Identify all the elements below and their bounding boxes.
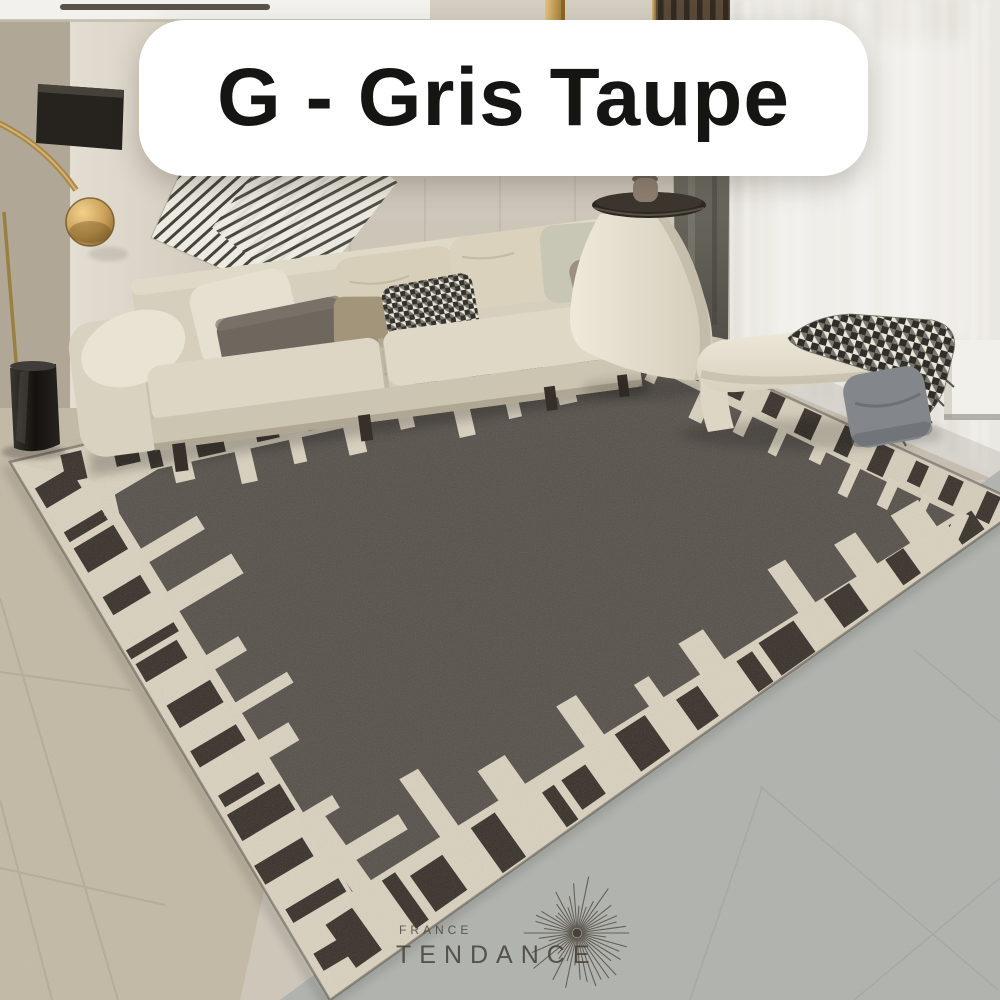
product-photo: G - Gris Taupe FRANCE TENDANCE xyxy=(0,0,1000,1000)
ceiling-recess xyxy=(60,4,270,10)
variant-label-badge: G - Gris Taupe xyxy=(139,20,868,176)
brand-line2: TENDANCE xyxy=(396,943,598,968)
gray-cushion xyxy=(840,363,934,450)
brand-line1: FRANCE xyxy=(399,924,598,936)
variant-label-text: G - Gris Taupe xyxy=(217,51,790,145)
brand-watermark: FRANCE TENDANCE xyxy=(396,924,598,968)
